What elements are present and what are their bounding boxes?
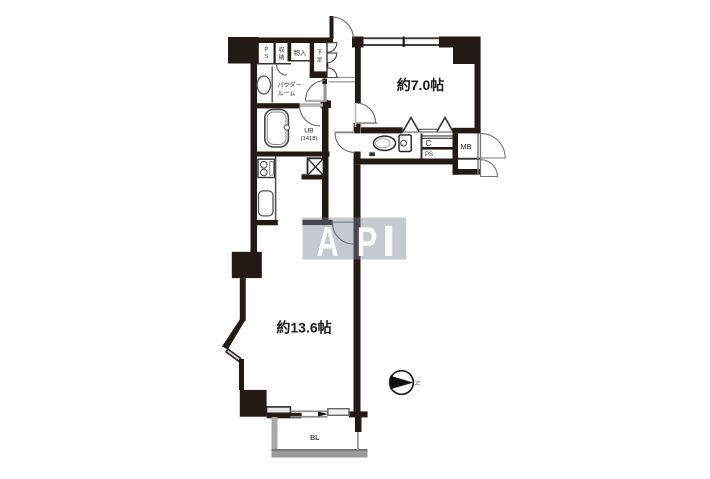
svg-text:ルーム: ルーム: [278, 91, 296, 98]
svg-text:P: P: [357, 218, 377, 265]
svg-text:納: 納: [278, 54, 284, 62]
svg-text:N: N: [413, 380, 422, 385]
svg-text:BL: BL: [310, 435, 320, 442]
svg-text:UB: UB: [304, 128, 314, 135]
svg-text:パウダー: パウダー: [278, 81, 302, 89]
svg-text:物入: 物入: [294, 48, 308, 57]
svg-text:C: C: [426, 139, 432, 148]
svg-text:足: 足: [317, 57, 323, 64]
svg-text:A: A: [317, 218, 339, 265]
svg-text:収: 収: [278, 47, 284, 54]
svg-text:S: S: [265, 54, 269, 60]
svg-text:MB: MB: [460, 142, 471, 151]
svg-text:下: 下: [317, 49, 323, 56]
svg-text:PS: PS: [425, 152, 433, 158]
svg-text:(1418): (1418): [301, 136, 318, 142]
svg-text:P: P: [265, 47, 269, 53]
svg-text:約13.6帖: 約13.6帖: [276, 320, 331, 336]
svg-text:約7.0帖: 約7.0帖: [397, 77, 444, 93]
